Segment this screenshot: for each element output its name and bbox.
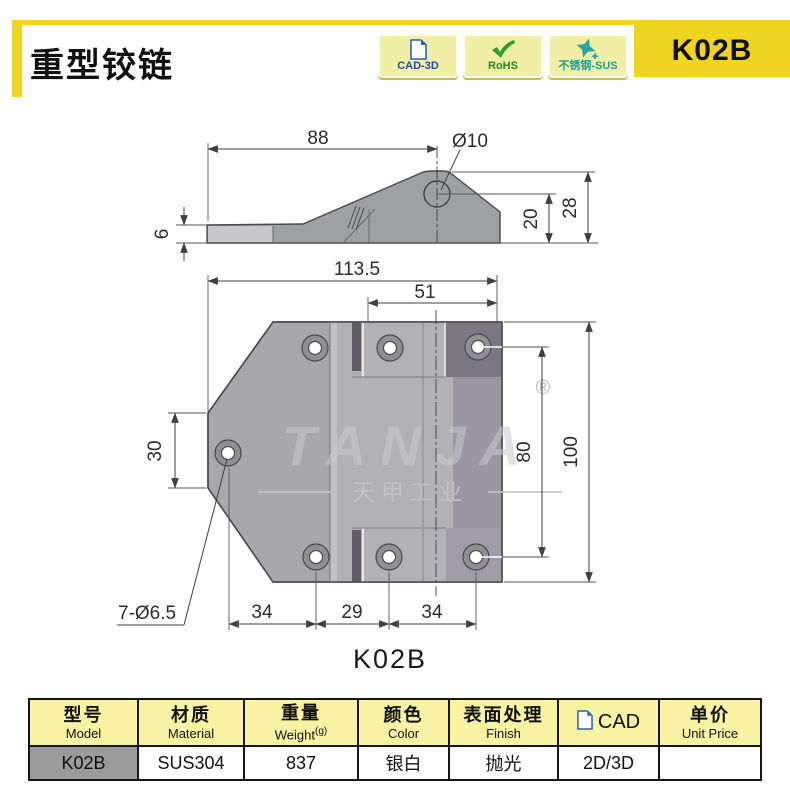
header-cad-label: CAD [598, 711, 640, 734]
dim-holes-note: 7-Ø6.5 [118, 603, 176, 624]
watermark-company: 天甲工业 [352, 479, 468, 505]
dim-pitch-c: 34 [421, 602, 443, 623]
badge-sus[interactable]: 不锈钢-SUS [548, 34, 628, 78]
cell-cad[interactable]: 2D/3D [558, 746, 659, 780]
cell-material: SUS304 [138, 746, 244, 780]
technical-drawing: 88 Ø10 6 20 28 [0, 0, 790, 790]
header-weight-zh: 重量 [245, 702, 357, 724]
header-finish-en: Finish [450, 726, 557, 741]
header-unit-price-zh: 单价 [660, 704, 760, 726]
dim-hole-span: 80 [514, 441, 535, 462]
spec-table-data-row: K02B SUS304 837 银白 抛光 2D/3D [29, 746, 761, 780]
cell-weight: 837 [244, 746, 358, 780]
badge-bar: CAD-3D RoHS 不锈钢-SUS [378, 34, 628, 78]
cell-model: K02B [29, 746, 138, 780]
header-model: 型号 Model [29, 699, 138, 746]
dim-overall-height: 100 [561, 436, 582, 468]
header-material: 材质 Material [138, 699, 244, 746]
header-color: 颜色 Color [358, 699, 449, 746]
header-cad: CAD [558, 699, 659, 746]
dim-total-height: 28 [560, 197, 581, 218]
model-code: K02B [672, 34, 753, 68]
cell-unit-price [659, 746, 761, 780]
badge-cad-3d[interactable]: CAD-3D [378, 34, 458, 78]
header-unit-price: 单价 Unit Price [659, 699, 761, 746]
badge-rohs[interactable]: RoHS [463, 34, 543, 78]
dim-pitch-a: 34 [251, 602, 273, 623]
cell-finish: 抛光 [449, 746, 558, 780]
front-view: TANJA 天甲工业 ® 113.5 51 30 [117, 259, 596, 674]
header-color-zh: 颜色 [359, 704, 448, 726]
left-accent-bar [12, 20, 22, 97]
dim-left-edge-height: 30 [145, 440, 166, 461]
side-view: 88 Ø10 6 20 28 [152, 128, 598, 261]
header-material-zh: 材质 [139, 704, 243, 726]
badge-rohs-label: RoHS [488, 60, 518, 73]
header-material-en: Material [139, 726, 243, 741]
drawing-caption: K02B [353, 644, 427, 674]
cell-color: 银白 [358, 746, 449, 780]
header-model-en: Model [30, 726, 137, 741]
dim-pitch-b: 29 [341, 602, 362, 623]
header-color-en: Color [359, 726, 448, 741]
header-weight: 重量 Weight(g) [244, 699, 358, 746]
check-icon [490, 38, 516, 60]
dim-overall-width: 113.5 [334, 259, 380, 280]
cad-file-icon [577, 710, 593, 736]
badge-sus-label: 不锈钢-SUS [558, 60, 617, 73]
spec-table-header-row: 型号 Model 材质 Material 重量 Weight(g) 颜色 Col… [29, 699, 761, 746]
sparkle-star-icon [576, 38, 600, 60]
dim-hole-dia: Ø10 [452, 131, 488, 152]
page-title: 重型铰链 [30, 38, 174, 87]
header-finish: 表面处理 Finish [449, 699, 558, 746]
cad-document-icon [410, 38, 427, 60]
model-code-box: K02B [634, 25, 790, 77]
watermark-brand: TANJA [282, 414, 535, 477]
dim-leaf-width: 51 [414, 282, 435, 303]
dim-hole-height: 20 [521, 208, 542, 229]
registered-mark: ® [536, 377, 551, 399]
spec-table: 型号 Model 材质 Material 重量 Weight(g) 颜色 Col… [28, 698, 762, 781]
header-model-zh: 型号 [30, 704, 137, 726]
dim-thickness: 6 [152, 229, 173, 240]
header-weight-en: Weight(g) [245, 724, 357, 742]
header-finish-zh: 表面处理 [450, 704, 557, 726]
dim-length: 88 [307, 128, 328, 149]
badge-cad-3d-label: CAD-3D [397, 60, 439, 73]
header-unit-price-en: Unit Price [660, 726, 760, 741]
